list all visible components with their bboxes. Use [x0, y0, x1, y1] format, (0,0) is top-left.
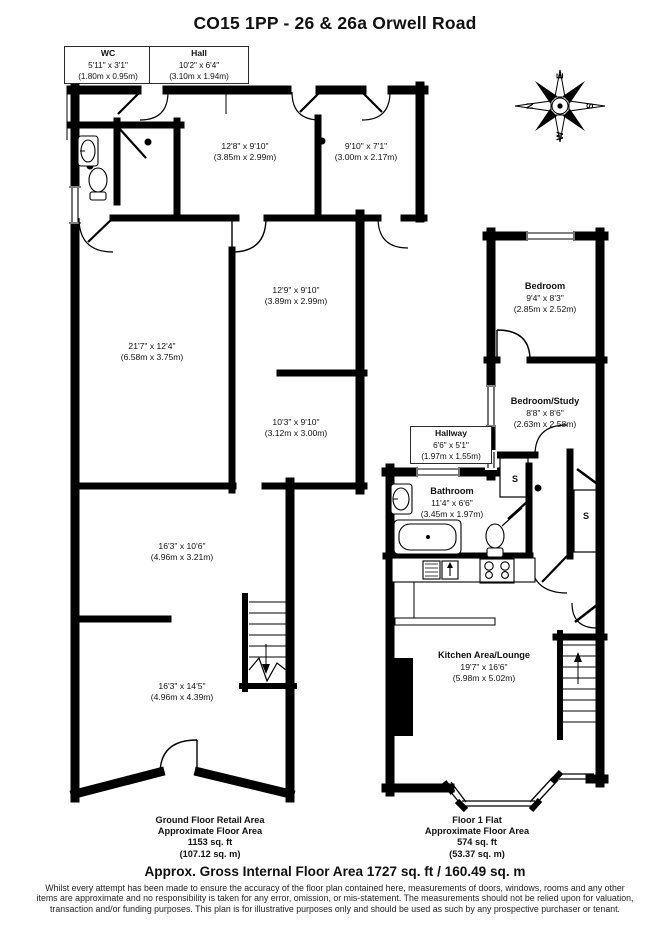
chimney-breast — [386, 658, 413, 736]
room-dims-imperial: 10'2" x 6'4" — [153, 60, 245, 71]
room-dims-imperial: 5'11" x 3'1" — [68, 60, 148, 71]
room-dims-imperial: 6'6" x 5'1" — [414, 440, 488, 451]
compass-w: W — [555, 131, 565, 140]
bathtub-icon — [394, 520, 461, 554]
hall-label-box: Hall 10'2" x 6'4" (3.10m x 1.94m) — [149, 46, 249, 84]
room-label: 10'3" x 9'10" (3.12m x 3.00m) — [265, 417, 328, 439]
flat-walls — [386, 232, 604, 792]
compass-icon: N E S W — [515, 70, 605, 142]
toilet-icon — [486, 524, 504, 557]
room-label: 12'9" x 9'10" (3.89m x 2.99m) — [265, 285, 328, 307]
compass-s: S — [585, 103, 595, 109]
label-leader-lines — [67, 87, 492, 464]
room-dims-metric: (1.80m x 0.95m) — [68, 71, 148, 82]
room-dims-metric: (3.10m x 1.94m) — [153, 71, 245, 82]
room-label: 16'3" x 14'5" (4.96m x 4.39m) — [151, 681, 214, 703]
basin-icon — [391, 484, 412, 514]
room-label-bedroom: Bedroom 9'4" x 8'3" (2.85m x 2.52m) — [514, 281, 577, 315]
room-label: 9'10" x 7'1" (3.00m x 2.17m) — [335, 141, 398, 163]
room-label: 12'8" x 9'10" (3.85m x 2.99m) — [214, 141, 277, 163]
flat-caption: Floor 1 Flat Approximate Floor Area 574 … — [425, 815, 529, 860]
hallway-label-box: Hallway 6'6" x 5'1" (1.97m x 1.55m) — [410, 426, 492, 464]
room-label: 16'3" x 10'6" (4.96m x 3.21m) — [151, 541, 214, 563]
compass-n: N — [525, 103, 535, 110]
total-area-text: Approx. Gross Internal Floor Area 1727 s… — [0, 864, 670, 879]
floorplan-page: CO15 1PP - 26 & 26a Orwell Road — [0, 0, 670, 948]
room-dims-metric: (1.97m x 1.55m) — [414, 451, 488, 462]
room-label: 21'7" x 12'4" (6.58m x 3.75m) — [121, 341, 184, 363]
ground-floor-caption: Ground Floor Retail Area Approximate Flo… — [156, 815, 265, 860]
room-name: Hallway — [414, 428, 488, 440]
stairs-up-icon — [563, 645, 596, 722]
room-name: Hall — [153, 48, 245, 60]
room-name: WC — [68, 48, 148, 60]
bay-window — [444, 772, 594, 810]
storage-label: S — [512, 474, 518, 484]
compass-e: E — [555, 73, 565, 79]
stairs-down-icon — [249, 602, 286, 681]
room-label-kitchen-lounge: Kitchen Area/Lounge 19'7" x 16'6" (5.98m… — [438, 650, 530, 684]
wc-label-box: WC 5'11" x 3'1" (1.80m x 0.95m) — [64, 46, 152, 84]
toilet-icon — [89, 168, 107, 200]
kitchen-fixtures — [386, 558, 535, 736]
room-label-bedroom-study: Bedroom/Study 8'8" x 8'6" (2.63m x 2.58m… — [511, 396, 579, 430]
room-label-bathroom: Bathroom 11'4" x 6'6" (3.45m x 1.97m) — [421, 486, 484, 520]
disclaimer-text: Whilst every attempt has been made to en… — [35, 883, 635, 914]
ground-floor-walls — [71, 86, 424, 798]
storage-label: S — [583, 511, 589, 521]
sink-icon — [78, 136, 98, 166]
